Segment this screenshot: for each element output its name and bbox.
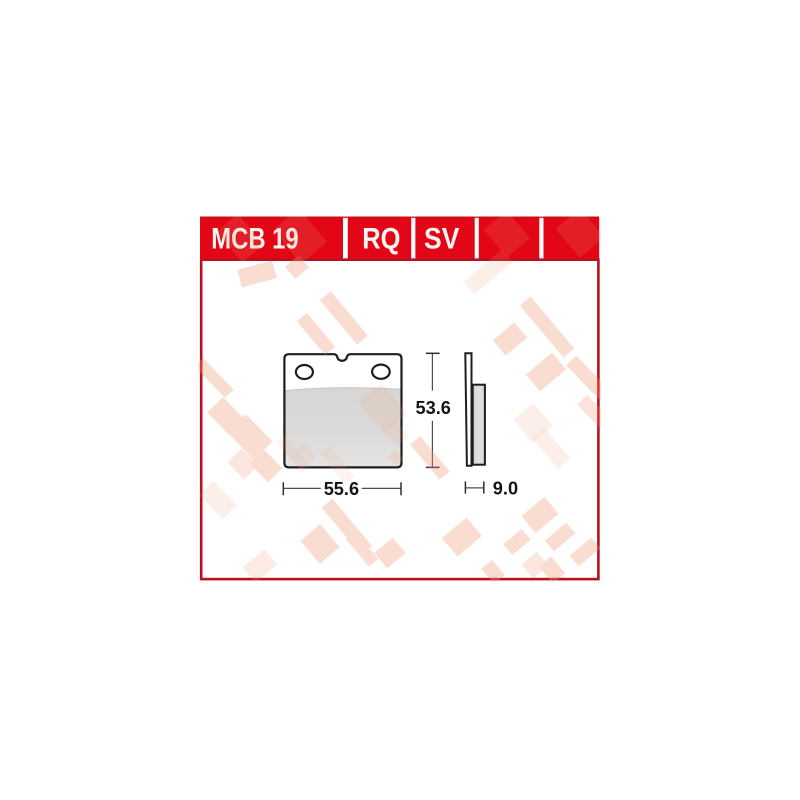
svg-text:9.0: 9.0 (493, 479, 518, 499)
svg-text:53.6: 53.6 (415, 398, 450, 418)
svg-text:RQ: RQ (362, 222, 400, 255)
svg-text:SV: SV (424, 222, 460, 255)
svg-text:55.6: 55.6 (324, 479, 359, 499)
